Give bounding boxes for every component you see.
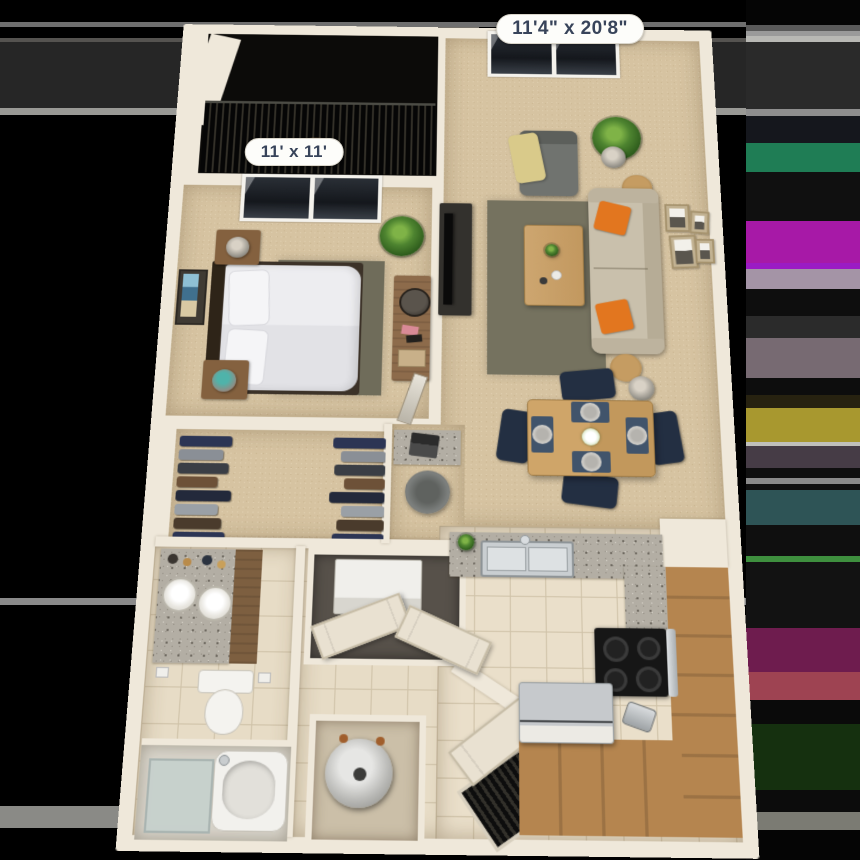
fridge-seam — [520, 720, 613, 723]
glitch-band — [746, 490, 860, 525]
glitch-band — [746, 446, 860, 468]
table-plant — [545, 244, 559, 256]
glitch-band — [746, 338, 860, 378]
glitch-band — [746, 672, 860, 700]
garment — [179, 436, 232, 447]
garment — [329, 492, 385, 504]
garment — [176, 476, 218, 487]
glitch-band — [746, 221, 860, 263]
floorplan-image: 11'4" x 20'8" 11' x 11' — [0, 0, 860, 860]
glitch-band — [746, 812, 860, 830]
floor-lamp — [601, 146, 626, 168]
glitch-band — [746, 289, 860, 316]
kitchen-sink — [480, 540, 574, 578]
dimension-label-living-dining: 11'4" x 20'8" — [496, 14, 644, 44]
sink-basin — [487, 546, 527, 571]
floorplan — [115, 24, 759, 859]
garment — [174, 504, 218, 515]
refrigerator — [519, 682, 615, 744]
glitch-band — [746, 269, 860, 289]
sofa-armrest — [591, 338, 665, 354]
burner — [637, 637, 661, 661]
glitch-band — [746, 172, 860, 221]
toilet-paper-holder — [155, 667, 169, 678]
glitch-band — [746, 408, 860, 442]
plate — [532, 425, 552, 444]
coaster — [551, 270, 562, 280]
bedroom-window — [239, 174, 382, 223]
glitch-band — [746, 143, 860, 172]
coaster — [540, 277, 548, 284]
gallery-frame — [664, 204, 690, 232]
garment — [336, 520, 384, 532]
bathtub-basin — [221, 760, 277, 819]
garment — [178, 449, 223, 460]
garment — [172, 532, 224, 538]
burner — [603, 636, 629, 662]
office-chair — [405, 470, 451, 514]
kitchen-faucet — [520, 535, 530, 545]
garment — [334, 465, 385, 476]
garment — [341, 451, 386, 462]
dresser-tray — [398, 349, 426, 367]
garment — [177, 463, 229, 474]
floor-lamp — [628, 376, 655, 401]
bed-pillow — [228, 269, 269, 326]
plate — [627, 426, 648, 445]
garment — [333, 438, 386, 449]
plate — [580, 403, 600, 422]
garment — [331, 534, 383, 540]
glitch-band — [746, 628, 860, 672]
cabinet-run-bottom — [519, 738, 685, 837]
glitch-band — [746, 109, 860, 116]
glitch-band — [746, 830, 860, 860]
counter-plant — [458, 534, 475, 550]
glitch-band — [746, 562, 860, 628]
sink-basin — [528, 547, 568, 572]
dimension-label-bedroom: 11' x 11' — [245, 138, 344, 166]
laptop — [409, 432, 440, 458]
window-pane — [243, 177, 309, 219]
burner — [636, 666, 663, 692]
wall-art-canvas — [180, 274, 199, 317]
plate — [581, 452, 602, 472]
glitch-band — [746, 378, 860, 395]
glitch-band — [746, 395, 860, 408]
dining-chair — [559, 368, 616, 402]
glitch-band — [746, 700, 860, 724]
garment — [175, 490, 231, 502]
centerpiece — [582, 428, 601, 445]
garment — [341, 506, 384, 517]
closet-clothes-right — [323, 435, 386, 540]
glitch-band — [746, 790, 860, 812]
glitch-bands-right — [746, 0, 860, 860]
gallery-frame — [695, 239, 716, 264]
glitch-band — [746, 316, 860, 338]
gallery-frame — [690, 211, 710, 235]
glitch-band — [746, 42, 860, 109]
window-pane — [313, 178, 379, 220]
coffee-table — [524, 225, 585, 307]
sofa-armrest — [588, 188, 659, 203]
glitch-band — [746, 116, 860, 143]
glitch-band — [746, 724, 860, 790]
wall-art — [175, 269, 208, 325]
glitch-band — [746, 0, 860, 25]
garment — [173, 518, 221, 530]
shower-glass — [144, 758, 215, 833]
closet-clothes-left — [172, 433, 238, 538]
toilet-paper-holder — [258, 672, 271, 683]
kitchen-counter-return — [624, 566, 668, 633]
glitch-band — [746, 468, 860, 478]
tv — [443, 213, 453, 304]
garment — [344, 478, 385, 489]
glitch-band — [746, 525, 860, 556]
dresser-book — [406, 334, 422, 343]
wall-kitchen-corner — [660, 519, 728, 568]
